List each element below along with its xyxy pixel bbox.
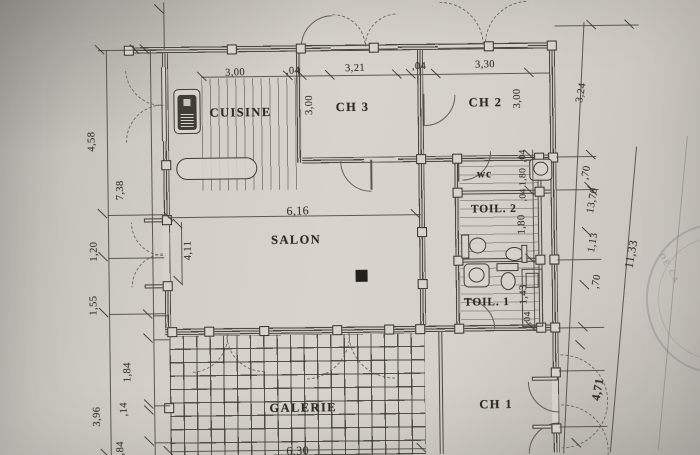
dim-left-155: 1,55 (88, 284, 100, 328)
toilet-tank-icon (496, 263, 518, 271)
kitchen-counter (176, 157, 257, 180)
dim-top-300: 3,00 (213, 67, 257, 79)
dim-line (555, 24, 639, 26)
dim-tick (575, 340, 585, 350)
extension-line (153, 315, 169, 316)
toilet-tank-icon (461, 235, 469, 259)
column-marker (417, 227, 427, 237)
column-marker (547, 40, 557, 50)
wall-galerie-ch1 (438, 332, 443, 454)
column-marker (551, 423, 561, 433)
dim-left-014: ,14 (118, 387, 130, 431)
floor-plan-drawing: CUISINE CH 3 CH 2 wc TOIL. 2 SALON TOIL.… (0, 0, 700, 455)
dim-line (163, 2, 165, 49)
column-marker (418, 279, 428, 289)
column-marker (453, 188, 463, 198)
dim-toilet-180b: 1,80 (516, 202, 528, 246)
column-marker (161, 160, 171, 170)
wc-sink-basin (533, 162, 548, 176)
dim-left-120: 1,20 (89, 230, 101, 274)
room-label-galerie: GALERIE (255, 400, 351, 416)
dim-top-330: 3,30 (463, 59, 507, 71)
column-marker (384, 324, 394, 334)
dim-left-738: 7,38 (115, 168, 127, 212)
column-marker (227, 44, 237, 54)
column-marker (296, 44, 306, 54)
dim-top-04a: ,04 (271, 65, 315, 77)
dim-right-1133: 11,33 (620, 231, 643, 277)
toilet-bowl-icon (469, 237, 486, 253)
room-label-salon: SALON (248, 232, 344, 248)
dim-galerie-630: 6,30 (275, 443, 319, 455)
dim-left-458: 4,58 (86, 120, 98, 164)
dim-tick (579, 280, 589, 290)
extension-line (155, 442, 171, 443)
dim-tick (144, 436, 154, 446)
room-label-ch1: CH 1 (448, 397, 544, 413)
column-marker (535, 187, 545, 197)
dim-line (106, 50, 112, 455)
column-marker (454, 324, 464, 334)
dim-top-321: 3,21 (333, 62, 377, 74)
column-marker (452, 154, 462, 164)
sink-basin (468, 267, 484, 282)
salon-column-black (356, 270, 368, 282)
column-marker (332, 325, 342, 335)
dim-left-084: ,84 (115, 426, 127, 455)
dim-right-324: 3,24 (572, 70, 591, 115)
door-leaf (370, 160, 372, 190)
column-marker (259, 326, 269, 336)
dim-tick (143, 333, 153, 343)
column-marker (416, 154, 426, 164)
fridge-detail (182, 98, 191, 107)
dim-tick (97, 209, 107, 219)
column-marker (551, 367, 561, 377)
column-marker (369, 43, 379, 53)
dim-right-70b: ,70 (587, 259, 606, 304)
extension-line (153, 339, 169, 340)
dim-salon-616: 6,16 (276, 203, 320, 219)
floor-plan-photo: CUISINE CH 3 CH 2 wc TOIL. 2 SALON TOIL.… (0, 0, 700, 455)
extension-line (154, 405, 170, 406)
column-marker (163, 281, 173, 291)
column-marker (204, 327, 214, 337)
column-marker (167, 327, 177, 337)
room-label-ch3: CH 3 (304, 99, 400, 115)
toilet-bowl-icon (501, 272, 516, 290)
dim-left-396: 3,96 (92, 395, 104, 439)
door-leaf (422, 94, 424, 126)
dim-tick (100, 449, 110, 455)
column-marker (535, 255, 545, 265)
dim-ch2-300: 3,00 (512, 76, 524, 120)
dim-line (610, 146, 637, 452)
column-marker (484, 41, 494, 51)
column-marker (415, 324, 425, 334)
dim-tick (98, 308, 108, 318)
dim-toilet-04c: ,04 (523, 296, 534, 340)
dim-ch3-300: 3,00 (304, 83, 316, 127)
room-label-cuisine: CUISINE (193, 105, 289, 121)
dim-top-04b: ,04 (397, 60, 441, 72)
dim-salon-411: 4,11 (183, 228, 195, 272)
extension-line (108, 214, 164, 216)
